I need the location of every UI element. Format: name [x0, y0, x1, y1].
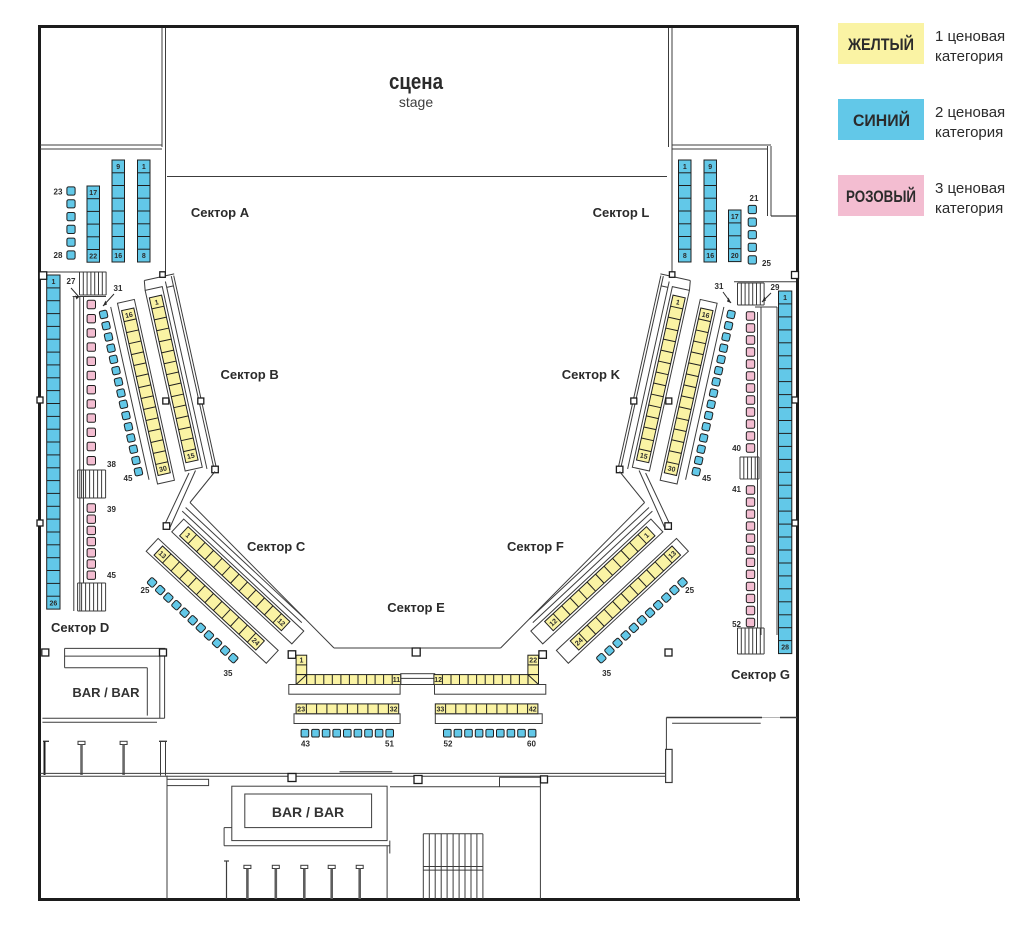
svg-text:сцена: сцена	[389, 69, 444, 94]
svg-text:Сектор L: Сектор L	[593, 205, 650, 220]
svg-text:9: 9	[116, 164, 120, 171]
svg-text:Сектор K: Сектор K	[562, 367, 621, 382]
svg-text:1 ценовая: 1 ценовая	[935, 28, 1005, 45]
svg-text:28: 28	[54, 251, 63, 260]
svg-text:Сектор F: Сектор F	[507, 539, 564, 554]
svg-text:27: 27	[67, 277, 76, 286]
svg-text:42: 42	[529, 707, 537, 714]
svg-text:25: 25	[762, 259, 771, 268]
svg-text:60: 60	[527, 740, 536, 749]
svg-text:BAR / BAR: BAR / BAR	[272, 804, 344, 820]
svg-text:ЖЕЛТЫЙ: ЖЕЛТЫЙ	[847, 35, 914, 54]
svg-text:1: 1	[142, 164, 146, 171]
svg-text:33: 33	[437, 707, 445, 714]
svg-text:Сектор D: Сектор D	[51, 620, 109, 635]
svg-text:2 ценовая: 2 ценовая	[935, 104, 1005, 121]
svg-text:Сектор C: Сектор C	[247, 539, 306, 554]
svg-text:20: 20	[731, 253, 739, 260]
svg-text:25: 25	[685, 586, 694, 595]
svg-text:категория: категория	[935, 200, 1003, 217]
svg-text:52: 52	[444, 740, 453, 749]
svg-text:28: 28	[781, 645, 789, 652]
svg-text:Сектор G: Сектор G	[731, 667, 790, 682]
svg-text:1: 1	[51, 279, 55, 286]
svg-text:45: 45	[124, 474, 133, 483]
svg-text:17: 17	[89, 190, 97, 197]
svg-text:39: 39	[107, 505, 116, 514]
svg-text:23: 23	[54, 188, 63, 197]
svg-text:1: 1	[783, 295, 787, 302]
svg-text:22: 22	[529, 658, 537, 665]
svg-text:СИНИЙ: СИНИЙ	[853, 111, 910, 130]
svg-text:16: 16	[706, 253, 714, 260]
svg-text:Сектор E: Сектор E	[387, 600, 445, 615]
svg-text:Сектор A: Сектор A	[191, 205, 250, 220]
svg-text:35: 35	[602, 669, 611, 678]
svg-text:3 ценовая: 3 ценовая	[935, 180, 1005, 197]
svg-text:22: 22	[89, 253, 97, 260]
svg-text:45: 45	[702, 474, 711, 483]
svg-text:23: 23	[297, 707, 305, 714]
svg-text:BAR / BAR: BAR / BAR	[72, 685, 140, 700]
svg-text:31: 31	[114, 284, 123, 293]
svg-text:40: 40	[732, 444, 741, 453]
svg-text:43: 43	[301, 740, 310, 749]
svg-text:35: 35	[224, 669, 233, 678]
svg-text:9: 9	[708, 164, 712, 171]
svg-text:38: 38	[107, 460, 116, 469]
svg-text:8: 8	[683, 253, 687, 260]
svg-text:32: 32	[390, 707, 398, 714]
svg-text:Сектор B: Сектор B	[221, 367, 279, 382]
svg-text:stage: stage	[399, 94, 433, 110]
svg-text:категория: категория	[935, 124, 1003, 141]
svg-text:8: 8	[142, 253, 146, 260]
svg-text:17: 17	[731, 214, 739, 221]
svg-text:26: 26	[50, 600, 58, 607]
svg-text:21: 21	[750, 194, 759, 203]
svg-text:11: 11	[393, 677, 401, 684]
svg-text:29: 29	[771, 283, 780, 292]
svg-text:51: 51	[385, 740, 394, 749]
svg-text:41: 41	[732, 485, 741, 494]
svg-text:1: 1	[299, 658, 303, 665]
svg-text:РОЗОВЫЙ: РОЗОВЫЙ	[846, 187, 916, 206]
svg-text:1: 1	[683, 164, 687, 171]
svg-text:45: 45	[107, 571, 116, 580]
svg-text:16: 16	[114, 253, 122, 260]
svg-text:12: 12	[434, 677, 442, 684]
svg-text:категория: категория	[935, 48, 1003, 65]
svg-text:31: 31	[715, 282, 724, 291]
svg-text:25: 25	[141, 586, 150, 595]
